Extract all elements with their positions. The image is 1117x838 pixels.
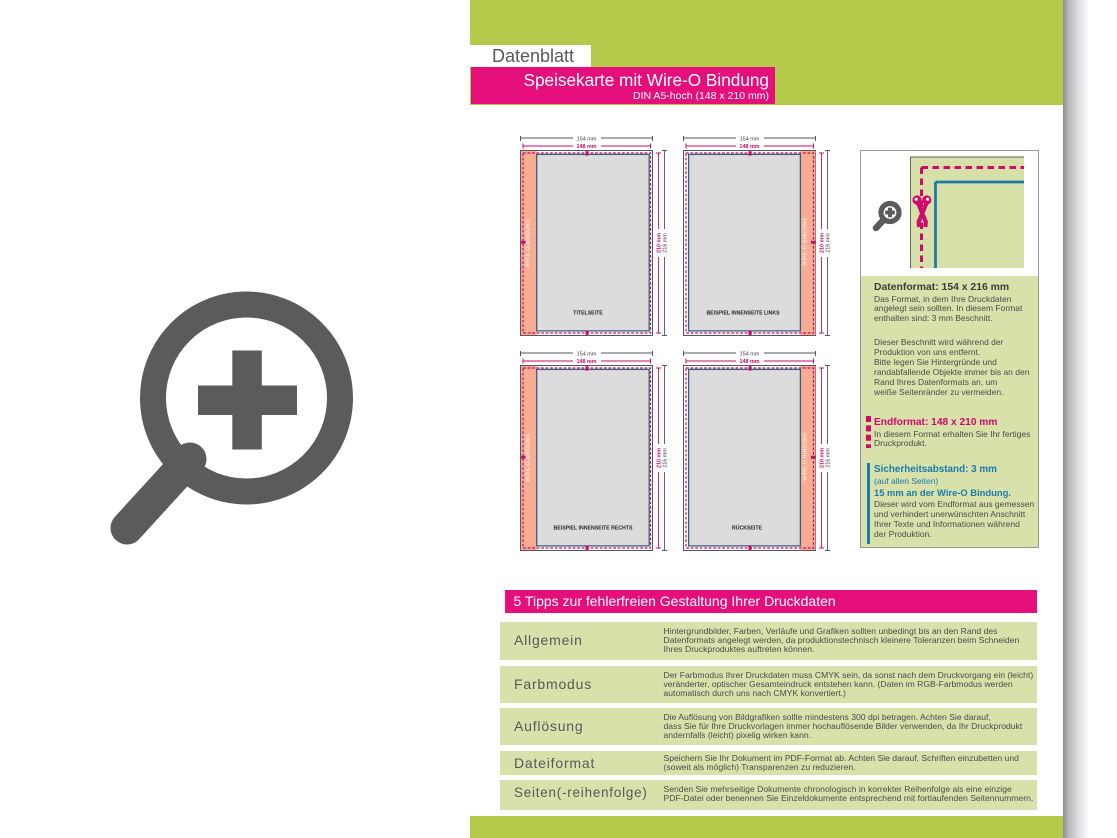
svg-text:WIRE-O-BINDUNG: WIRE-O-BINDUNG	[526, 434, 532, 482]
svg-text:BEISPIEL INNENSEITE LINKS: BEISPIEL INNENSEITE LINKS	[706, 311, 780, 317]
svg-text:154 mm: 154 mm	[577, 136, 597, 142]
svg-text:148 mm: 148 mm	[739, 359, 759, 365]
svg-text:148 mm: 148 mm	[739, 144, 759, 150]
svg-text:216 mm: 216 mm	[663, 448, 669, 468]
svg-text:WIRE-O-BINDUNG: WIRE-O-BINDUNG	[803, 432, 809, 480]
svg-text:154 mm: 154 mm	[740, 136, 760, 142]
svg-text:154 mm: 154 mm	[740, 351, 760, 357]
svg-text:216 mm: 216 mm	[826, 233, 832, 253]
svg-text:148 mm: 148 mm	[576, 359, 596, 365]
svg-text:WIRE-O-BINDUNG: WIRE-O-BINDUNG	[803, 217, 809, 265]
svg-text:BEISPIEL INNENSEITE RECHTS: BEISPIEL INNENSEITE RECHTS	[554, 526, 633, 532]
svg-text:216 mm: 216 mm	[663, 233, 669, 253]
svg-text:WIRE-O-BINDUNG: WIRE-O-BINDUNG	[526, 219, 532, 267]
svg-text:RÜCKSEITE: RÜCKSEITE	[732, 525, 763, 532]
svg-text:148 mm: 148 mm	[576, 144, 596, 150]
svg-text:154 mm: 154 mm	[577, 351, 597, 357]
svg-text:TITELSEITE: TITELSEITE	[573, 311, 603, 317]
svg-text:216 mm: 216 mm	[826, 448, 832, 468]
